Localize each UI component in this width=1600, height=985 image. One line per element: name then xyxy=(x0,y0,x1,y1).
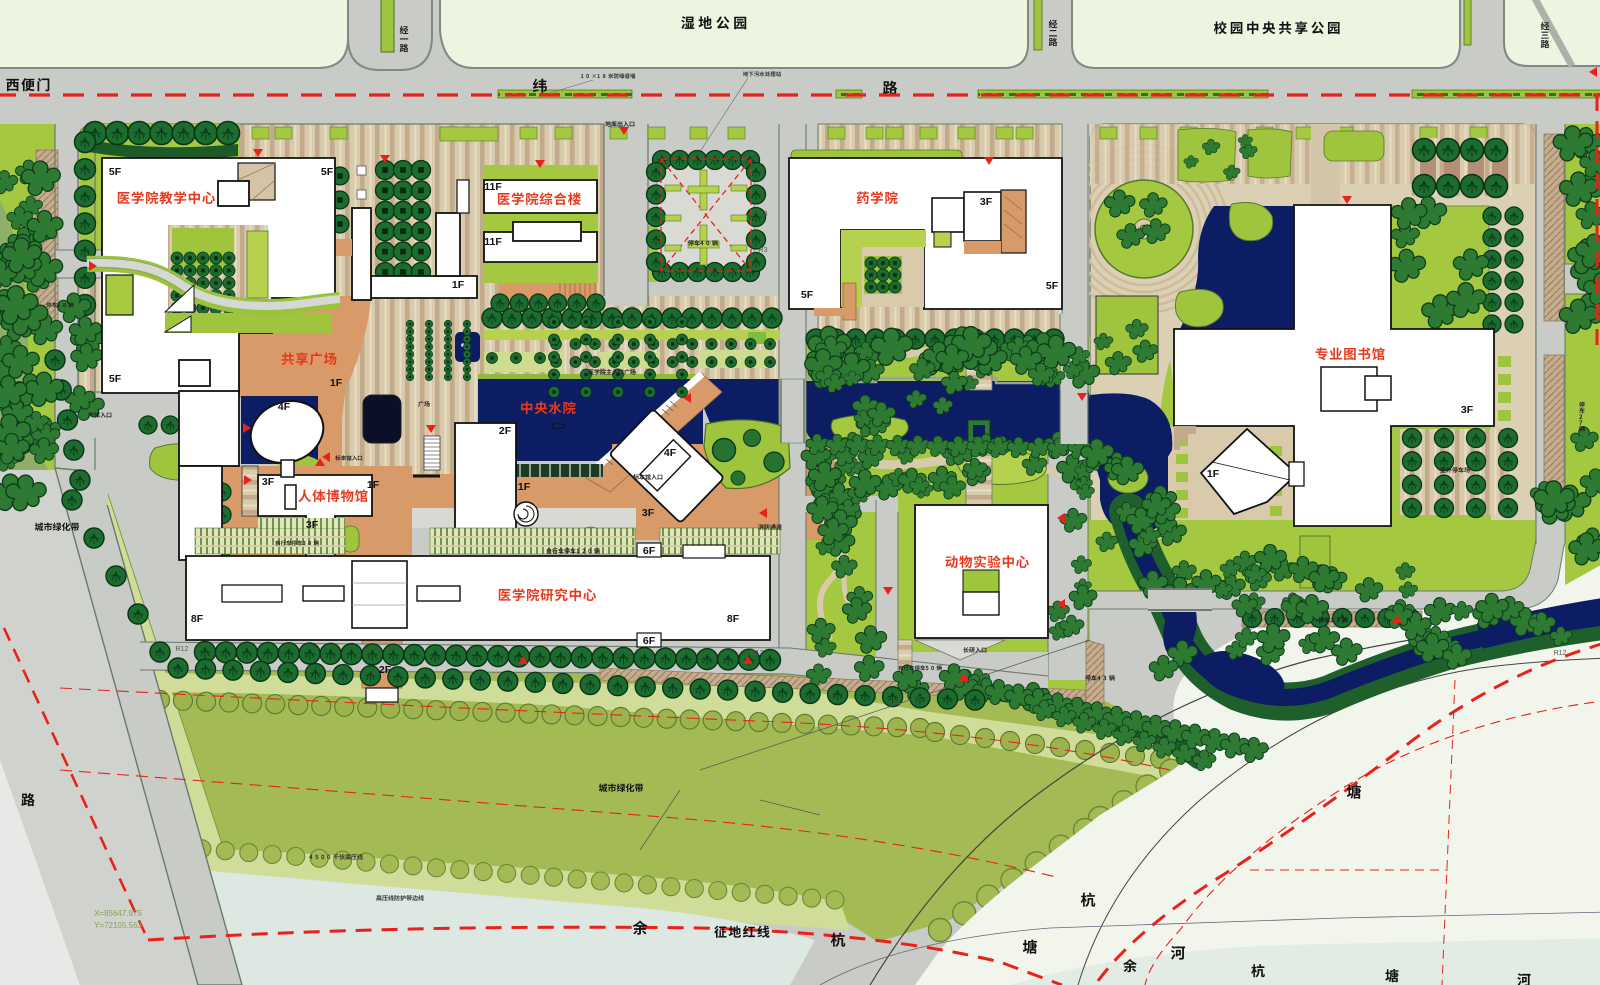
svg-text:3F: 3F xyxy=(306,519,319,531)
svg-text:3F: 3F xyxy=(980,196,993,208)
svg-text:1F: 1F xyxy=(518,481,531,493)
svg-text:1F: 1F xyxy=(1207,468,1220,480)
svg-text:2F: 2F xyxy=(499,425,512,437)
svg-text:R12: R12 xyxy=(1554,650,1567,657)
svg-text:3F: 3F xyxy=(262,476,275,488)
svg-text:1F: 1F xyxy=(330,377,343,389)
svg-text:5F: 5F xyxy=(801,289,814,301)
svg-text:5F: 5F xyxy=(321,166,334,178)
svg-text:4F: 4F xyxy=(278,401,291,413)
svg-text:6F: 6F xyxy=(643,545,656,557)
svg-text:1F: 1F xyxy=(452,279,465,291)
svg-text:8F: 8F xyxy=(727,613,740,625)
svg-text:8F: 8F xyxy=(191,613,204,625)
svg-text:X=85647.975: X=85647.975 xyxy=(94,909,142,918)
svg-text:Y=72105.563: Y=72105.563 xyxy=(94,921,142,930)
svg-text:3F: 3F xyxy=(642,507,655,519)
svg-text:1F: 1F xyxy=(367,479,380,491)
svg-text:11F: 11F xyxy=(484,236,502,248)
svg-text:5F: 5F xyxy=(1046,280,1059,292)
svg-text:5F: 5F xyxy=(109,166,122,178)
svg-text:5F: 5F xyxy=(109,373,122,385)
svg-text:11F: 11F xyxy=(484,181,502,193)
svg-text:R12: R12 xyxy=(751,650,764,657)
svg-text:R3: R3 xyxy=(759,247,768,254)
svg-text:3F: 3F xyxy=(1461,404,1474,416)
svg-text:6F: 6F xyxy=(643,635,656,647)
svg-text:4F: 4F xyxy=(664,447,677,459)
svg-text:2F: 2F xyxy=(379,664,392,676)
svg-text:R3: R3 xyxy=(759,211,768,218)
svg-text:R12: R12 xyxy=(176,646,189,653)
